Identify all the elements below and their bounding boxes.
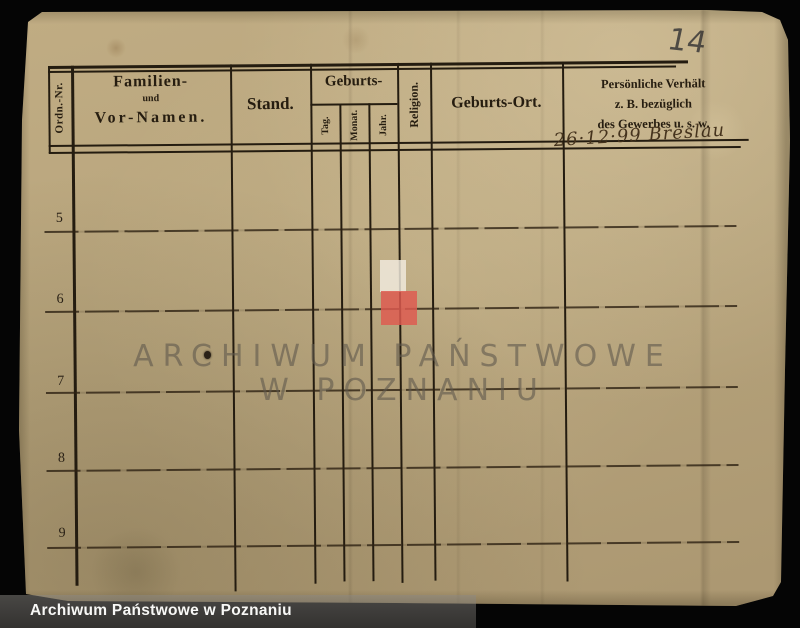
row-divider (47, 464, 739, 472)
row-number-6: 6 (50, 292, 70, 308)
row-number-8: 8 (51, 451, 71, 467)
geburts-subdivider (310, 103, 397, 105)
header-ordn-nr: Ordn.-Nr. (53, 82, 65, 133)
header-name-line2: und (71, 92, 230, 104)
watermark: ARCHIWUM PAŃSTWOWE W POZNANIU (16, 340, 790, 408)
header-persoenliche-line1: Persönliche Verhält (562, 73, 744, 95)
watermark-line2: W POZNANIU (16, 374, 790, 408)
header-persoenliche-line2: z. B. bezüglich (562, 93, 744, 115)
watermark-logo-white-square (380, 260, 406, 292)
header-border-bottom-inner (49, 146, 741, 154)
header-geburts-tag: Tag. (320, 116, 331, 134)
scan-viewport: 14 Ordn.-Nr. Familien- (0, 0, 800, 628)
document-paper: 14 Ordn.-Nr. Familien- (16, 10, 790, 608)
watermark-logo-red-square (381, 291, 417, 325)
header-geburts-jahr: Jahr. (378, 114, 389, 136)
register-table: Ordn.-Nr. Familien- und Vor-Namen. Stand… (48, 60, 753, 600)
table-border-left (48, 66, 51, 153)
row-divider (47, 541, 739, 549)
row-divider (44, 225, 736, 233)
row-number-5: 5 (49, 211, 69, 227)
header-name-line1: Familien- (71, 72, 230, 91)
row-number-9: 9 (52, 526, 72, 542)
watermark-line1: ARCHIWUM PAŃSTWOWE (16, 340, 790, 374)
header-geburts-monat: Monat. (349, 110, 360, 141)
header-name-line3: Vor-Namen. (71, 108, 230, 127)
header-stand: Stand. (230, 64, 311, 145)
archive-footer-bar: Archiwum Państwowe w Poznaniu (0, 595, 476, 628)
header-geburts-ort: Geburts-Ort. (430, 62, 563, 145)
pencil-page-number: 14 (664, 22, 709, 60)
header-geburts: Geburts- (310, 73, 397, 91)
header-name-cell: Familien- und Vor-Namen. (71, 72, 230, 127)
archive-footer-label: Archiwum Państwowe w Poznaniu (0, 595, 476, 627)
paper-hole-spot (204, 351, 211, 359)
header-religion: Religion. (407, 82, 422, 128)
